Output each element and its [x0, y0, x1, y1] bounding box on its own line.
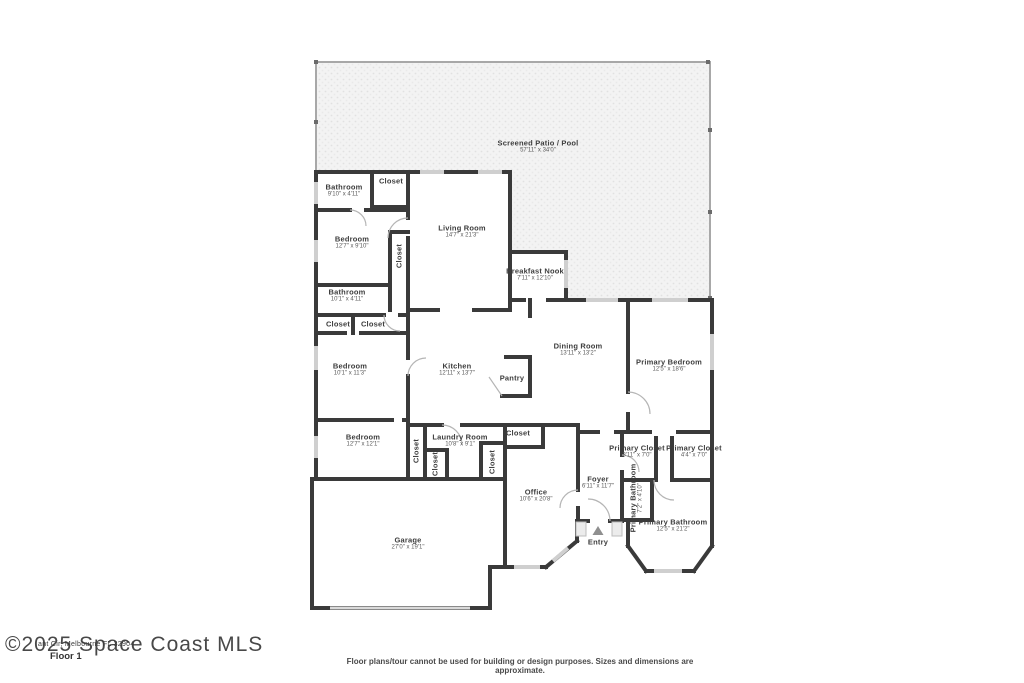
disclaimer-text: Floor plans/tour cannot be used for buil… — [330, 657, 710, 675]
floor-plan-page: Screened Patio / Pool57'11" x 34'0"Bathr… — [0, 0, 1024, 683]
floor-label: Floor 1 — [50, 651, 82, 662]
patio-area — [316, 62, 710, 300]
address-watermark: ant Cir, Melbourne FL 32904 — [38, 641, 135, 648]
floor-plan-drawing — [0, 0, 1024, 683]
entry-direction-icon — [593, 526, 604, 535]
